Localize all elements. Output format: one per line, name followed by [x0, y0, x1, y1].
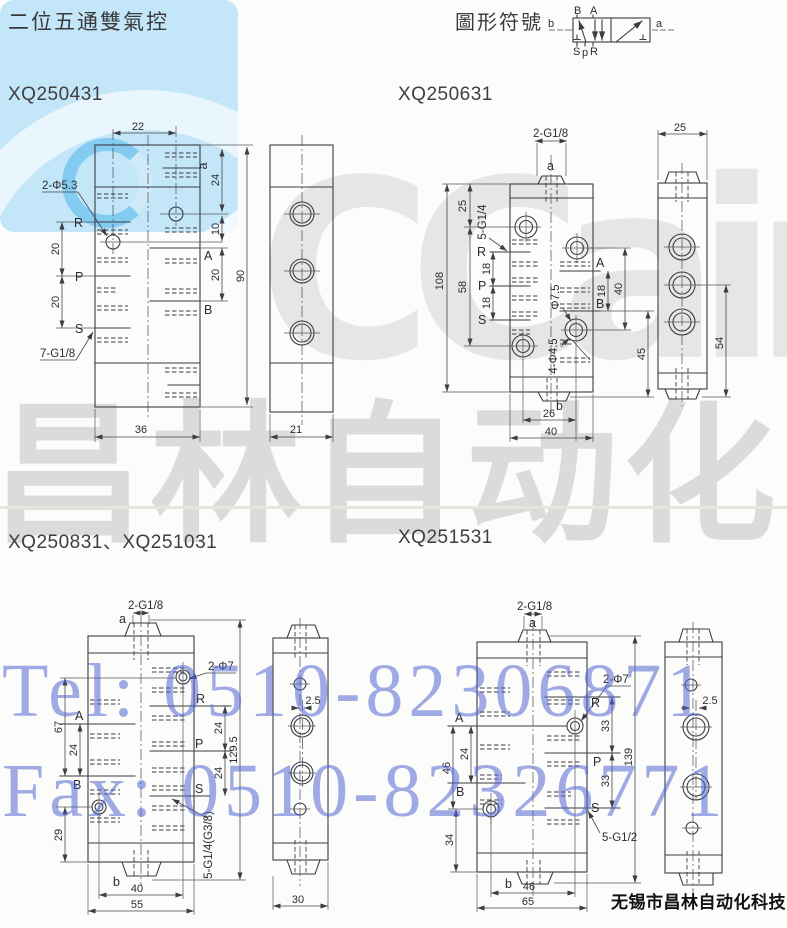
port-label-b: b — [505, 877, 512, 891]
dim-label: 55 — [131, 899, 143, 911]
dim-label: 20 — [50, 296, 62, 308]
callout-thread5: 5-G1/4 — [477, 204, 489, 240]
port-label-P: P — [593, 755, 601, 769]
port-label-S: S — [591, 801, 599, 815]
callout-top-thread: 2-G1/8 — [128, 600, 163, 612]
symbol-port-S: S — [573, 46, 580, 58]
port-label-S: S — [478, 313, 486, 327]
callout-phi45: 4-Φ4.5 — [548, 338, 560, 373]
port-label-B: B — [456, 785, 464, 799]
port-label-R: R — [477, 245, 486, 259]
port-label-a: a — [196, 162, 210, 169]
dim-label: 139 — [623, 748, 635, 766]
dim-label: 108 — [434, 272, 446, 290]
port-label-R: R — [74, 216, 83, 230]
dim-label: 30 — [292, 894, 304, 906]
dim-label: 90 — [235, 270, 247, 282]
callout-top-thread: 2-G1/8 — [517, 601, 552, 613]
dim-label: 34 — [444, 834, 456, 846]
dim-label: 40 — [545, 426, 557, 438]
callout-top-thread: 2-G1/8 — [533, 128, 568, 140]
callout-phi75: Φ7.5 — [550, 284, 562, 309]
callout-thread5: 5-G1/4(G3/8) — [203, 811, 215, 879]
dim-label: 24 — [459, 748, 471, 760]
symbol-port-p: p — [582, 47, 588, 59]
callout-thread5: 5-G1/2 — [602, 832, 637, 844]
section-divider — [0, 506, 787, 509]
port-label-B: B — [73, 778, 81, 792]
callout-holes: 2-Φ5.3 — [42, 180, 77, 192]
symbol-pilot-b: b — [548, 18, 554, 30]
model-label-xq251531: XQ251531 — [398, 527, 493, 549]
dim-label: 24 — [213, 767, 225, 779]
port-label-P: P — [478, 279, 486, 293]
dim-label: 10 — [210, 223, 222, 235]
dim-label: 25 — [457, 200, 469, 212]
port-label-a: a — [529, 616, 536, 630]
port-label-R: R — [196, 692, 205, 706]
port-label-A: A — [75, 709, 84, 723]
callout-holes: 2-Φ7 — [208, 661, 234, 673]
dim-label: 129.5 — [228, 736, 240, 764]
dim-label: 54 — [714, 337, 726, 349]
dim-label: 20 — [210, 269, 222, 281]
dim-label: 46 — [523, 881, 535, 893]
symbol-port-R: R — [590, 46, 598, 58]
dim-label: 18 — [596, 285, 608, 297]
port-label-S: S — [75, 322, 83, 336]
dim-label: 24 — [213, 722, 225, 734]
callout-thread: 7-G1/8 — [40, 348, 75, 360]
dim-label: 29 — [53, 829, 65, 841]
symbol-pilot-a: a — [656, 18, 663, 30]
dim-label: 46 — [441, 762, 453, 774]
port-label-a: a — [119, 612, 126, 626]
dim-label: 33 — [600, 775, 612, 787]
port-label-A: A — [596, 256, 605, 270]
drawing-xq250431: 22 24 10 20 90 20 20 36 21 a A B R P S 2… — [0, 115, 400, 460]
port-label-B: B — [204, 303, 212, 317]
drawing-xq250831: 2-G1/8 a 2-Φ7 R P S A B 67 24 29 24 24 1… — [0, 570, 400, 928]
symbol-title: 圖形符號 — [455, 6, 543, 35]
port-label-R: R — [591, 696, 600, 710]
dim-label: 26 — [543, 408, 555, 420]
port-label-b: b — [113, 875, 120, 889]
dim-label: 18 — [481, 297, 493, 309]
dim-label: 24 — [210, 174, 222, 186]
dim-label: 65 — [522, 896, 534, 908]
port-label-B: B — [596, 297, 604, 311]
port-label-a: a — [547, 159, 554, 173]
dim-label: 40 — [613, 283, 625, 295]
page-title: 二位五通雙氣控 — [8, 6, 169, 36]
port-label-S: S — [195, 782, 203, 796]
model-label-xq250431: XQ250431 — [8, 84, 103, 106]
catalog-page: CCair 昌林自动化 Tel: 0510-82306871 Fax: 0510… — [0, 0, 787, 928]
footer-company-name: 无锡市昌林自动化科技 — [611, 888, 786, 913]
model-label-xq250831: XQ250831、XQ251031 — [8, 527, 217, 554]
dim-label: 20 — [50, 243, 62, 255]
dim-label: 18 — [481, 263, 493, 275]
dim-label: 36 — [135, 424, 147, 436]
dim-label: 25 — [674, 122, 686, 134]
dim-label: 33 — [600, 720, 612, 732]
symbol-port-B: B — [574, 5, 581, 17]
dim-label: 22 — [132, 121, 144, 133]
drawing-xq251531: 2-G1/8 a 2-Φ7 R P S A B 24 46 34 33 33 1… — [400, 570, 787, 928]
callout-holes: 2-Φ7 — [603, 674, 629, 686]
dim-label: 24 — [68, 744, 80, 756]
dim-label: 67 — [53, 721, 65, 733]
symbol-port-A: A — [590, 5, 598, 17]
port-label-P: P — [195, 737, 203, 751]
valve-symbol-drawing: B A S p R b a — [540, 0, 680, 64]
dim-label: 21 — [290, 424, 302, 436]
dim-label: 40 — [131, 883, 143, 895]
dim-label: 2.5 — [305, 695, 320, 707]
port-label-A: A — [204, 249, 213, 263]
model-label-xq250631: XQ250631 — [398, 84, 493, 106]
dim-label: 58 — [457, 281, 469, 293]
drawing-xq250631: 2-G1/8 a 108 25 58 5-G1/4 R P S 18 18 A … — [400, 115, 787, 460]
dim-label: 45 — [636, 348, 648, 360]
port-label-P: P — [75, 270, 83, 284]
dim-label: 2.5 — [702, 695, 717, 707]
port-label-A: A — [455, 711, 464, 725]
port-label-b: b — [556, 399, 563, 413]
